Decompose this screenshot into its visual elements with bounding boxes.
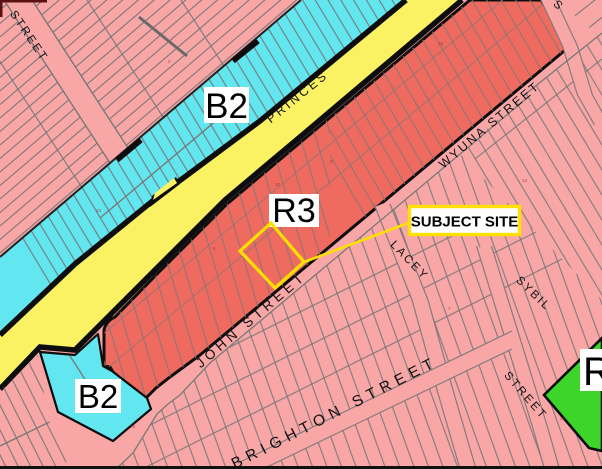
svg-text:R: R [583, 350, 602, 394]
svg-text:23: 23 [96, 208, 102, 213]
svg-text:R3: R3 [272, 192, 315, 230]
svg-text:14: 14 [522, 178, 528, 183]
svg-text:B2: B2 [205, 87, 248, 126]
svg-text:21: 21 [560, 416, 566, 421]
svg-text:28: 28 [130, 424, 136, 429]
svg-text:30: 30 [275, 182, 281, 187]
svg-text:B2: B2 [78, 378, 118, 415]
svg-text:SUBJECT SITE: SUBJECT SITE [411, 214, 519, 231]
svg-text:16: 16 [438, 41, 444, 46]
